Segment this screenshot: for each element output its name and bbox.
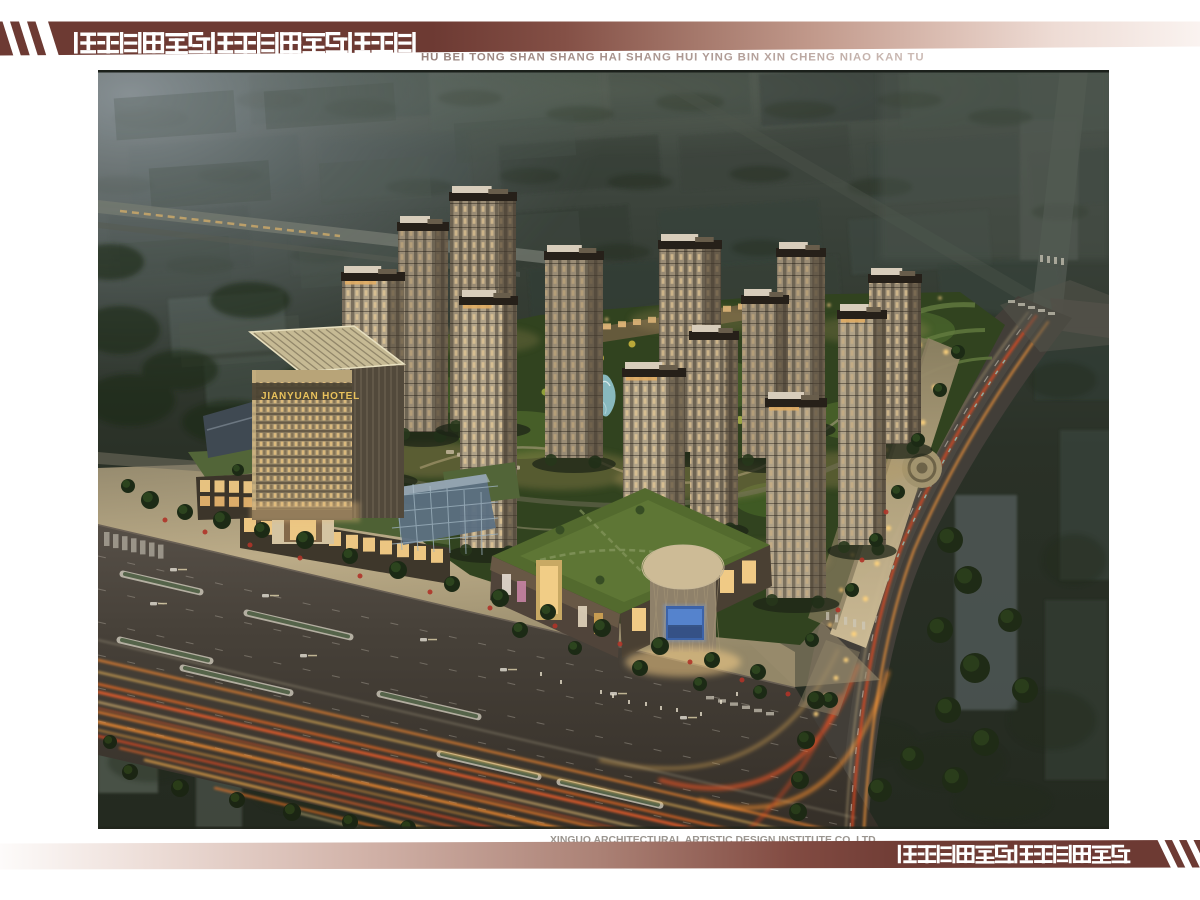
svg-text:JIANYUAN HOTEL: JIANYUAN HOTEL [261,391,360,402]
svg-text:HU BEI TONG SHAN SHANG HAI SHA: HU BEI TONG SHAN SHANG HAI SHANG HUI YIN… [421,52,925,64]
